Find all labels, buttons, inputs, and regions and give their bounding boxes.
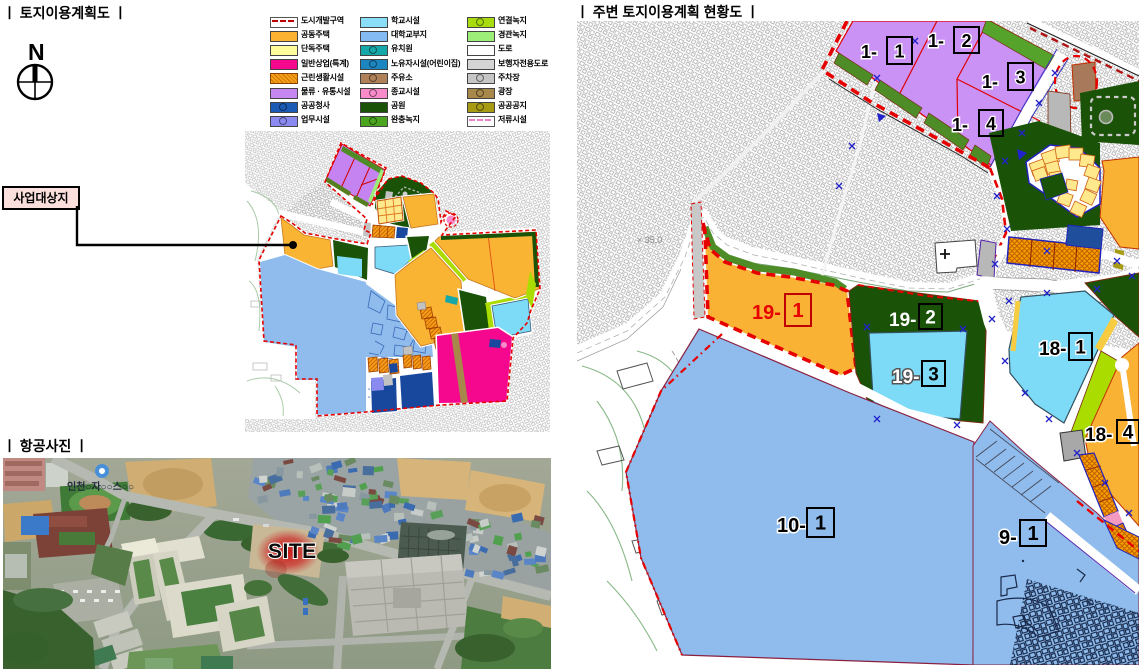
svg-text:SITE: SITE [268, 540, 317, 563]
svg-text:18-: 18- [1039, 339, 1066, 360]
svg-text:1-: 1- [982, 72, 998, 92]
svg-text:18-: 18- [1085, 425, 1112, 446]
svg-text:2: 2 [925, 308, 936, 329]
svg-text:× 35.0: × 35.0 [637, 235, 662, 245]
svg-text:4: 4 [1123, 423, 1134, 444]
svg-text:1: 1 [815, 513, 826, 535]
svg-text:4: 4 [986, 114, 996, 134]
svg-text:3: 3 [928, 365, 939, 386]
svg-text:19-: 19- [752, 302, 781, 324]
svg-text:1-: 1- [952, 115, 968, 135]
svg-text:인천○자○○스○○: 인천○자○○스○○ [67, 480, 134, 493]
svg-text:1-: 1- [861, 42, 877, 62]
svg-text:1: 1 [1075, 338, 1086, 359]
svg-text:10-: 10- [777, 515, 806, 537]
svg-text:2: 2 [961, 31, 971, 51]
svg-text:1: 1 [792, 300, 803, 322]
svg-text:9-: 9- [999, 527, 1017, 549]
svg-text:N: N [28, 39, 45, 65]
svg-text:19-: 19- [889, 310, 916, 331]
svg-text:1: 1 [894, 42, 904, 62]
svg-text:3: 3 [1015, 68, 1025, 88]
svg-text:1: 1 [1027, 523, 1038, 545]
svg-text:1-: 1- [928, 31, 944, 51]
svg-text:19-: 19- [892, 367, 919, 388]
